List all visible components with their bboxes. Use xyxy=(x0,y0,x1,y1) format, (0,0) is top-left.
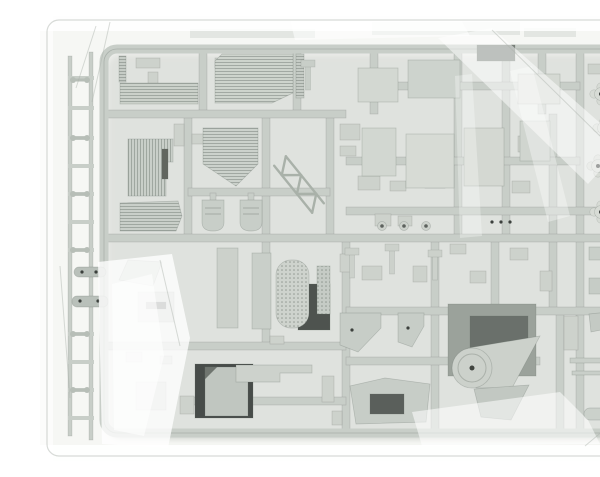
small-part-15 xyxy=(588,64,600,74)
ladder-crossbar-6 xyxy=(68,220,94,224)
gusset-hole-2 xyxy=(406,326,409,329)
small-part-25 xyxy=(322,376,334,402)
runner-vertical-1 xyxy=(184,114,192,238)
ladder-crossbar-4 xyxy=(68,164,94,168)
shovel-head-right xyxy=(589,278,600,294)
gusset-hole-1 xyxy=(350,328,353,331)
box-part-tr-4 xyxy=(362,128,396,176)
ladder-crossbar-9 xyxy=(68,360,94,364)
small-part-24 xyxy=(413,266,427,282)
small-part-29 xyxy=(270,336,284,344)
texture-overlay xyxy=(120,201,182,231)
small-part-30 xyxy=(564,316,578,350)
ribbed-strip-small xyxy=(119,56,126,82)
rivet-dot-1 xyxy=(490,220,493,223)
small-part-32 xyxy=(180,396,194,414)
ladder-rail-2 xyxy=(89,52,93,440)
small-part-22 xyxy=(540,271,552,291)
lens-dot-2a xyxy=(78,299,81,302)
tool-block-right xyxy=(589,247,600,260)
runner-vertical-5 xyxy=(326,114,334,238)
box-part-tr-1 xyxy=(358,68,398,102)
scene-illustration xyxy=(40,16,600,461)
box-part-tr-2 xyxy=(408,60,460,98)
small-part-11 xyxy=(390,181,406,191)
lens-dot-1b xyxy=(94,270,97,273)
lens-dot-1a xyxy=(80,270,83,273)
texture-overlay xyxy=(120,83,198,104)
small-part-1 xyxy=(136,58,160,68)
photo-layers xyxy=(40,16,600,461)
capsule-small-right xyxy=(584,408,600,420)
small-part-6 xyxy=(174,124,184,146)
hull-side-tall-1 xyxy=(217,248,238,328)
rivet-dot-2 xyxy=(499,220,502,223)
tray-interior-dark xyxy=(370,394,404,414)
small-part-26 xyxy=(332,411,342,425)
texture-overlay xyxy=(276,260,309,328)
ladder-crossbar-11 xyxy=(68,416,94,420)
ladder-crossbar-2 xyxy=(68,106,94,110)
glacis-plate-ribbed xyxy=(120,201,182,231)
runner-horizontal-6 xyxy=(104,234,600,242)
small-part-8 xyxy=(340,124,360,140)
bag-bottom-band xyxy=(40,445,600,461)
eyelet-ring-3 xyxy=(422,222,431,231)
texture-overlay xyxy=(119,56,126,82)
hull-side-tall-2 xyxy=(252,253,271,329)
engine-deck-plate xyxy=(215,54,293,103)
swing-arm-hub xyxy=(452,348,492,388)
small-part-9 xyxy=(340,146,356,156)
grille-dotted-strip xyxy=(317,266,330,314)
rivet-dot-3 xyxy=(508,220,511,223)
small-part-7 xyxy=(192,134,204,144)
capsule-panel xyxy=(276,260,309,328)
tow-rod-2 xyxy=(572,371,600,375)
lump-part-right xyxy=(589,312,600,332)
eyelet-ring-2 xyxy=(400,222,409,231)
bag-top-band xyxy=(40,16,600,31)
small-part-14 xyxy=(512,181,530,193)
box-part-tr-5 xyxy=(406,134,454,188)
eyelet-ring-1 xyxy=(378,222,387,231)
texture-overlay xyxy=(215,54,293,103)
small-part-19 xyxy=(450,244,466,254)
small-part-21 xyxy=(510,248,528,260)
small-part-18 xyxy=(362,266,382,280)
runner-horizontal-2 xyxy=(104,110,346,118)
small-part-23 xyxy=(470,271,486,283)
runner-vertical-2 xyxy=(199,49,207,114)
small-part-10 xyxy=(358,176,380,190)
dark-slot-vertical xyxy=(162,149,168,179)
sprue-bag-photo: Photograph of a light gray plastic model… xyxy=(40,16,600,461)
louver-plate-top-left xyxy=(120,83,198,104)
texture-overlay xyxy=(317,266,330,314)
tow-rod-1 xyxy=(570,358,600,363)
